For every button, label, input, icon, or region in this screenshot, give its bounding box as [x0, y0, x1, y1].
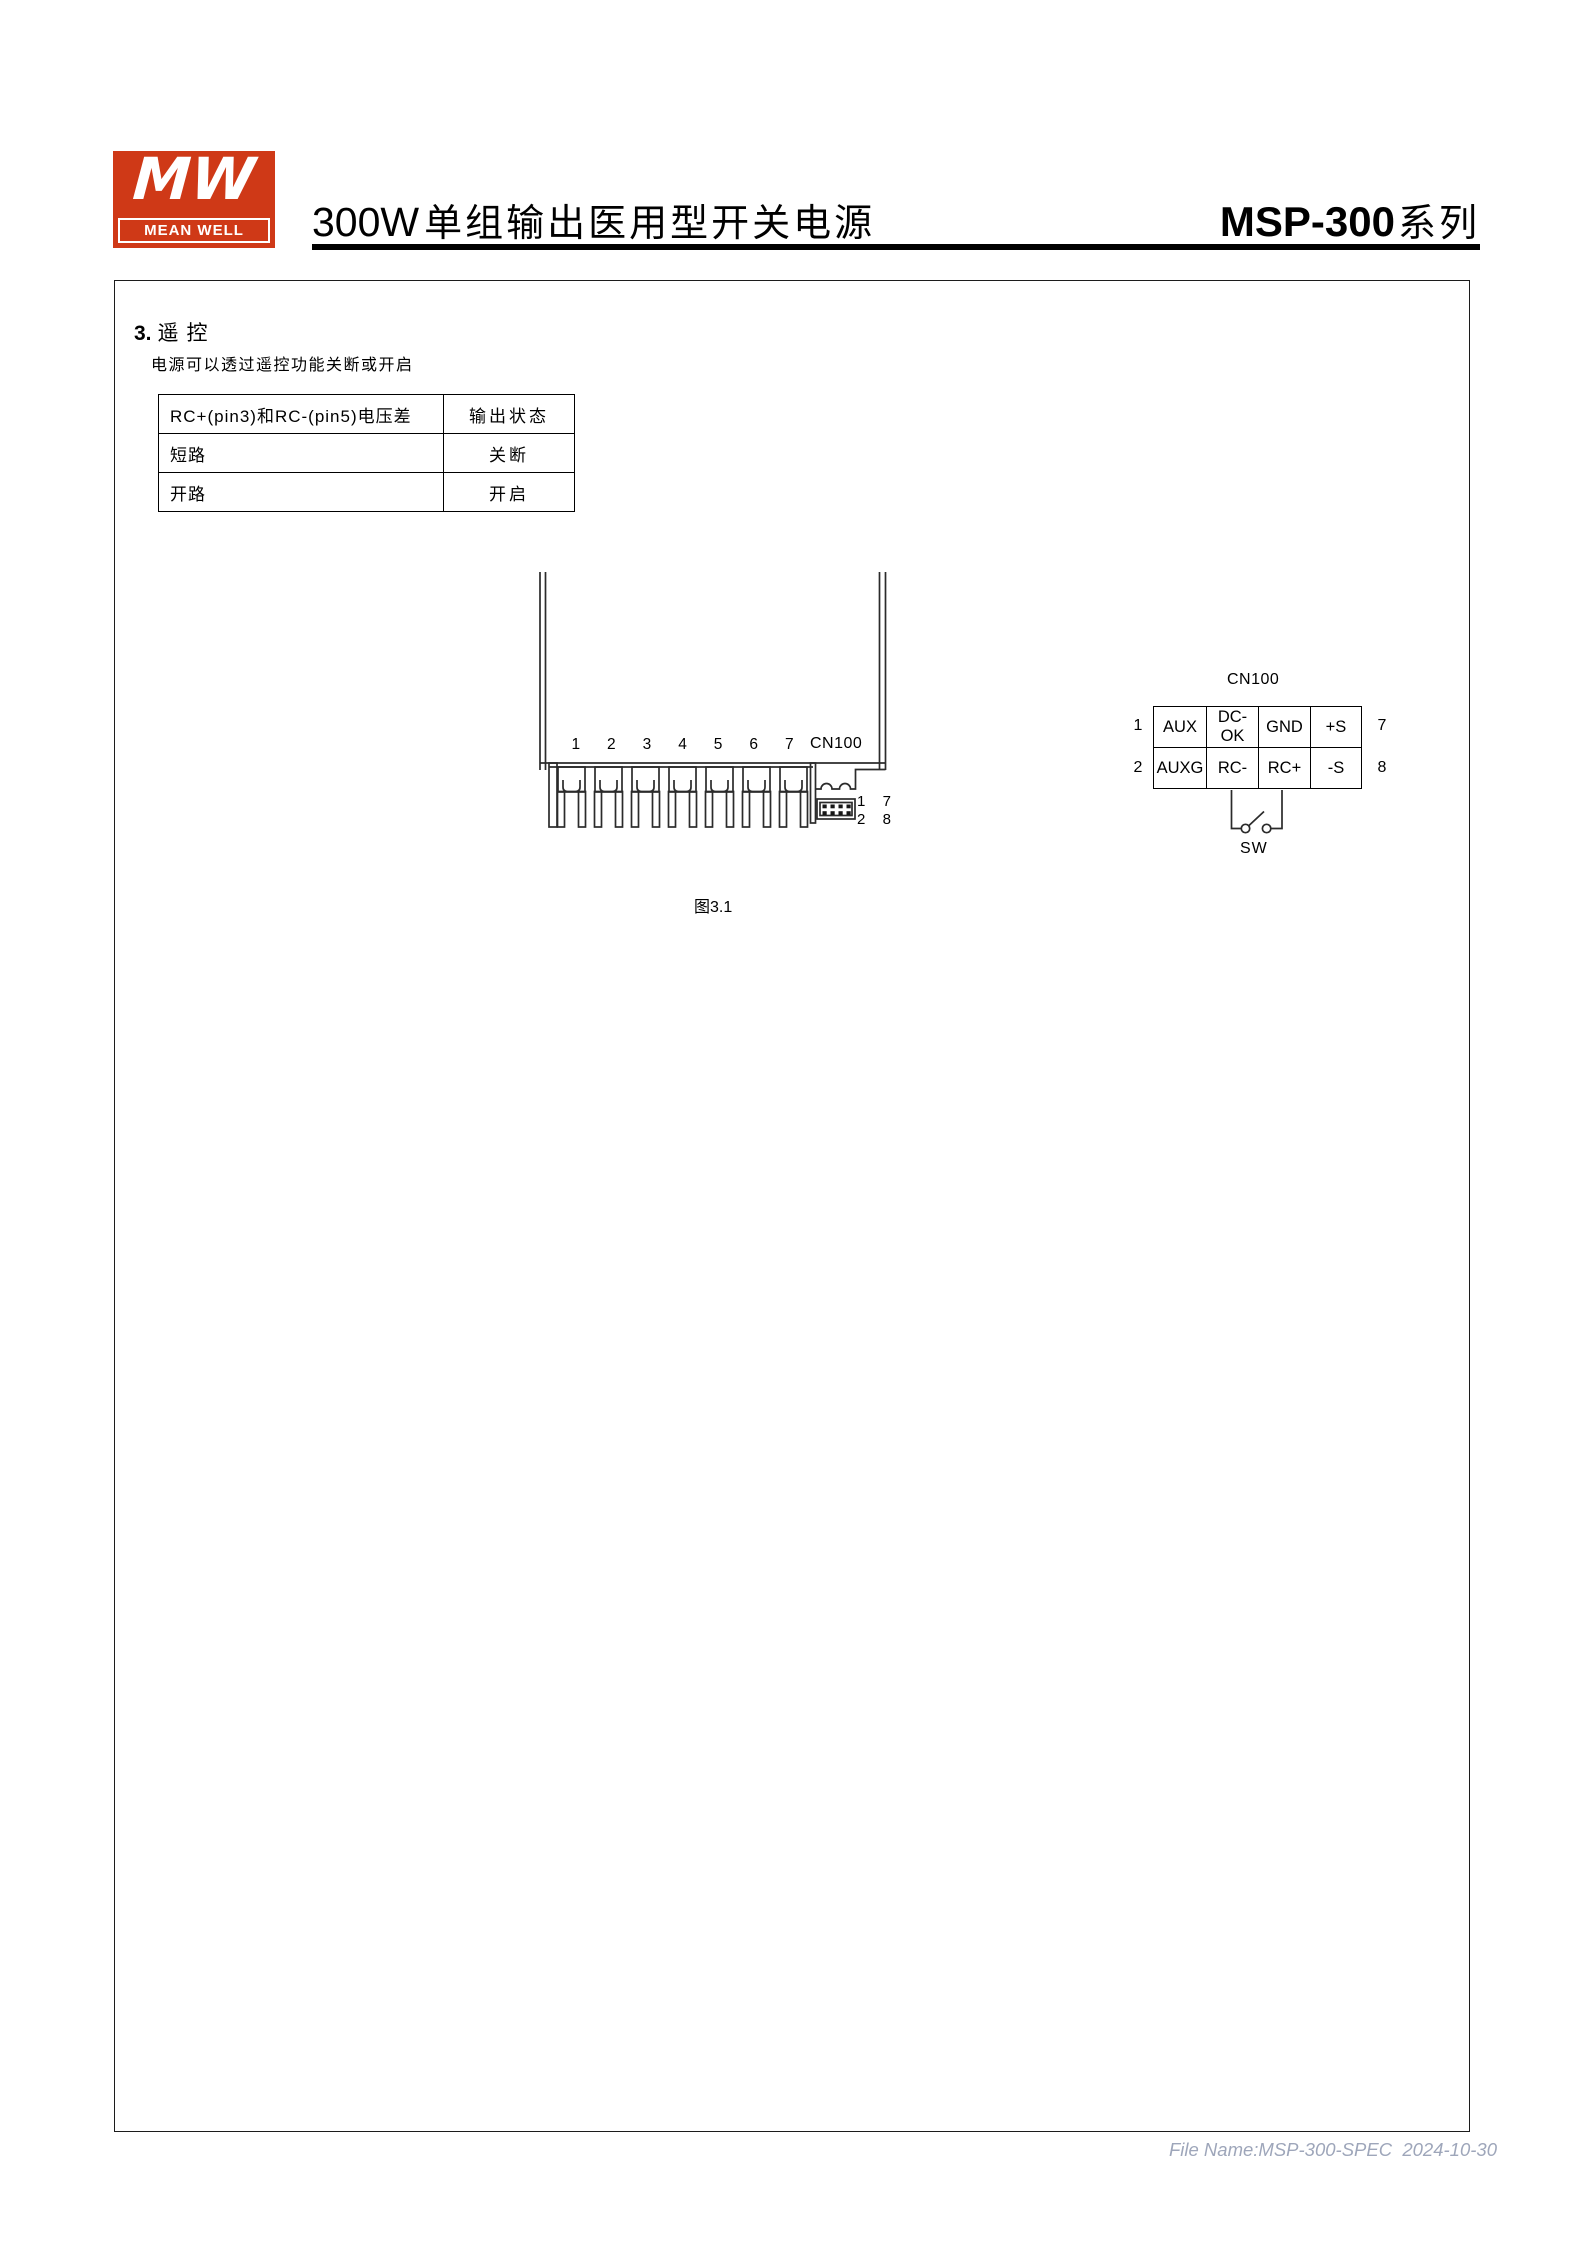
section-heading: 3.遥控: [134, 317, 216, 347]
datasheet-page: MW MEAN WELL 300W单组输出医用型开关电源 MSP-300系列 3…: [0, 0, 1587, 2245]
cn100-pin-2: 2: [1130, 759, 1146, 777]
terminal-numbers: 1 2 3 4 5 6 7: [558, 736, 807, 754]
figure-caption: 图3.1: [694, 893, 732, 917]
meanwell-logo-monogram: MW: [111, 145, 278, 213]
page-title-prefix: 300W: [312, 199, 419, 245]
section-description: 电源可以透过遥控功能关断或开启: [151, 351, 414, 375]
terminal-number: 4: [665, 736, 701, 754]
rc-table-cell: 开启: [444, 473, 575, 512]
cn100-pin-1: 1: [1130, 717, 1146, 735]
series-title: MSP-300系列: [1220, 192, 1480, 247]
cn100-pin-8: 8: [1374, 759, 1390, 777]
cn100-cell: AUX: [1154, 707, 1207, 748]
switch-label: SW: [1240, 840, 1268, 858]
footer-file-info: File Name:MSP-300-SPEC 2024-10-30: [1169, 2139, 1497, 2161]
rc-table-header-output: 输出状态: [444, 395, 575, 434]
connector-pin-labels-top: 1 7: [857, 793, 891, 810]
cn100-cell: -S: [1311, 748, 1362, 789]
content-frame: [114, 280, 1470, 2132]
section-number: 3.: [134, 322, 152, 345]
table-row: 开路 开启: [159, 473, 575, 512]
cn100-cell: DC-OK: [1207, 707, 1259, 748]
pin-label: 8: [883, 811, 891, 828]
cn100-pin-7: 7: [1374, 717, 1390, 735]
meanwell-logo-brand: MEAN WELL: [118, 218, 270, 243]
series-suffix: 系列: [1398, 203, 1480, 245]
section-title: 遥控: [158, 322, 216, 345]
title-underline: [312, 244, 1480, 250]
table-row: AUXG RC- RC+ -S: [1154, 748, 1362, 789]
rc-table-cell: 短路: [159, 434, 444, 473]
cn100-connector-label: CN100: [810, 735, 862, 753]
pin-label: 7: [883, 793, 891, 810]
meanwell-logo: MW MEAN WELL: [113, 151, 275, 248]
table-row: RC+(pin3)和RC-(pin5)电压差 输出状态: [159, 395, 575, 434]
terminal-number: 1: [558, 736, 594, 754]
terminal-number: 3: [629, 736, 665, 754]
terminal-number: 5: [700, 736, 736, 754]
rc-table-header-condition: RC+(pin3)和RC-(pin5)电压差: [159, 395, 444, 434]
cn100-pinout-title: CN100: [1227, 671, 1279, 689]
page-title-zh: 单组输出医用型开关电源: [424, 203, 875, 245]
pin-label: 1: [857, 793, 865, 810]
cn100-cell: RC+: [1259, 748, 1311, 789]
terminal-number: 7: [771, 736, 807, 754]
table-row: AUX DC-OK GND +S: [1154, 707, 1362, 748]
terminal-number: 6: [736, 736, 772, 754]
cn100-cell: GND: [1259, 707, 1311, 748]
pin-label: 2: [857, 811, 865, 828]
rc-table-cell: 开路: [159, 473, 444, 512]
remote-control-table: RC+(pin3)和RC-(pin5)电压差 输出状态 短路 关断 开路 开启: [158, 394, 575, 512]
connector-pin-labels-bottom: 2 8: [857, 811, 891, 828]
series-model: MSP-300: [1220, 198, 1395, 245]
table-row: 短路 关断: [159, 434, 575, 473]
cn100-cell: +S: [1311, 707, 1362, 748]
cn100-cell: AUXG: [1154, 748, 1207, 789]
cn100-cell: RC-: [1207, 748, 1259, 789]
rc-table-cell: 关断: [444, 434, 575, 473]
page-title: 300W单组输出医用型开关电源: [312, 192, 875, 247]
terminal-number: 2: [594, 736, 630, 754]
cn100-pinout-table: AUX DC-OK GND +S AUXG RC- RC+ -S: [1153, 706, 1362, 789]
